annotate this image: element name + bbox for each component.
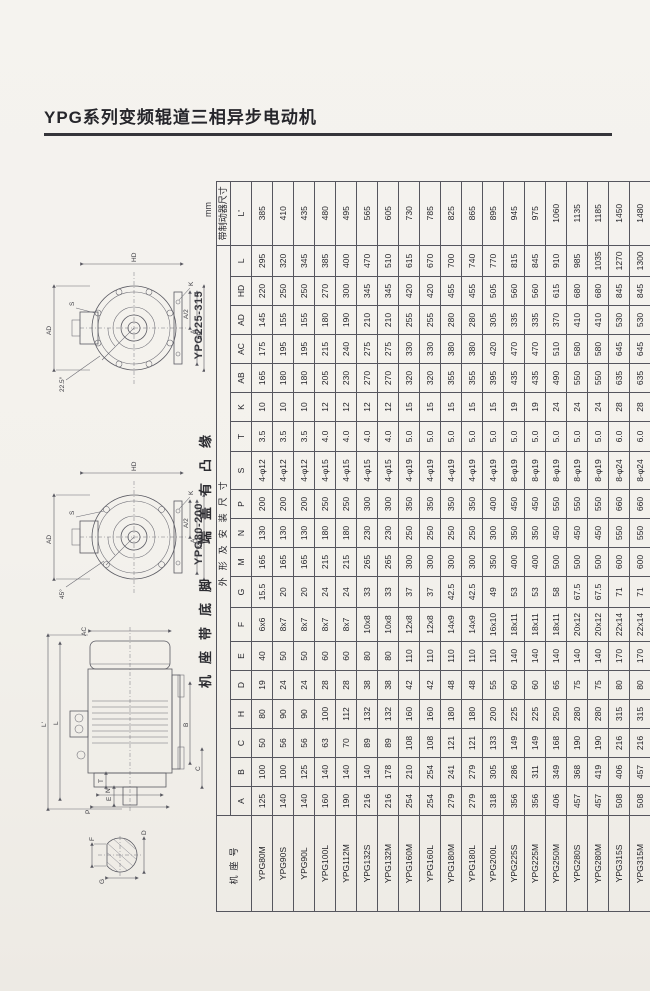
dim-cell: 265 (357, 548, 378, 577)
dim-cell: 56 (273, 729, 294, 758)
model-label: YPG132M (378, 816, 399, 912)
dim-cell: 1185 (588, 181, 609, 245)
shaft-cross-section: F D G (78, 822, 150, 888)
dim-cell: 80 (252, 700, 273, 729)
dim-cell: 550 (588, 364, 609, 393)
dim-cell: 10 (273, 393, 294, 422)
dim-cell: 8-φ19 (546, 452, 567, 490)
model-label: YPG315M (630, 816, 650, 912)
dim-cell: 14x9 (441, 608, 462, 642)
table-row: YPG180M2792411211804811014x942.530025035… (441, 181, 462, 911)
table-row: YPG280M4574191902807514020x1267.55004505… (588, 181, 609, 911)
motor-side-view: L' L AC B C E T N P (38, 625, 216, 815)
dim-cell: 200 (252, 490, 273, 519)
dim-cell: 1135 (567, 181, 588, 245)
dim-cell: 215 (315, 335, 336, 364)
dim-label-d: D (141, 830, 148, 835)
dim-cell: 130 (273, 519, 294, 548)
dim-cell: 149 (525, 729, 546, 758)
dim-cell: 53 (504, 577, 525, 608)
dim-cell: 15 (462, 393, 483, 422)
dim-cell: 635 (630, 364, 650, 393)
dim-cell: 140 (567, 642, 588, 671)
dim-cell: 250 (294, 277, 315, 306)
dim-cell: 5.0 (567, 422, 588, 452)
dim-cell: 80 (609, 671, 630, 700)
dim-cell: 280 (588, 700, 609, 729)
dim-cell: 419 (588, 758, 609, 787)
motor-outline (70, 627, 184, 811)
dim-cell: 130 (294, 519, 315, 548)
dim-cell: 4-φ15 (378, 452, 399, 490)
dim-cell: 5.0 (504, 422, 525, 452)
dim-cell: 60 (525, 671, 546, 700)
col-header-E: E (231, 642, 252, 671)
dim-cell: 5.0 (462, 422, 483, 452)
col-header-D: D (231, 671, 252, 700)
dim-cell: 565 (357, 181, 378, 245)
dim-cell: 395 (483, 364, 504, 393)
dim-cell: 740 (462, 245, 483, 276)
dimension-lines: L' L AC B C E T N P (41, 627, 202, 814)
dim-cell: 200 (294, 490, 315, 519)
model-label: YPG225M (525, 816, 546, 912)
dim-cell: 160 (399, 700, 420, 729)
dim-cell: 300 (462, 548, 483, 577)
dim-cell: 250 (336, 490, 357, 519)
dim-cell: 580 (567, 335, 588, 364)
dim-cell: 305 (483, 758, 504, 787)
dim-cell: 300 (336, 277, 357, 306)
dim-cell: 895 (483, 181, 504, 245)
table-row: YPG280S4573681902807514020x1267.55004505… (567, 181, 588, 911)
dim-cell: 10x8 (378, 608, 399, 642)
dim-cell: 42.5 (441, 577, 462, 608)
dim-cell: 510 (546, 335, 567, 364)
col-header-S: S (231, 452, 252, 490)
dim-cell: 168 (546, 729, 567, 758)
table-row: YPG315M5084572163158017022x1471600550660… (630, 181, 650, 911)
dim-cell: 406 (546, 787, 567, 816)
motor-outline (72, 481, 186, 593)
dim-cell: 250 (462, 519, 483, 548)
table-row: YPG112M1901407011228608x7242151802504-φ1… (336, 181, 357, 911)
table-row: YPG90L140125569024508x7201651302004-φ123… (294, 181, 315, 911)
dim-cell: 8-φ19 (567, 452, 588, 490)
dim-cell: 140 (336, 758, 357, 787)
dim-cell: 175 (252, 335, 273, 364)
dim-cell: 420 (420, 277, 441, 306)
dim-cell: 356 (504, 787, 525, 816)
dim-cell: 200 (273, 490, 294, 519)
dim-cell: 210 (357, 306, 378, 335)
dim-cell: 190 (336, 306, 357, 335)
dim-cell: 42 (399, 671, 420, 700)
dim-cell: 910 (546, 245, 567, 276)
dim-cell: 435 (294, 181, 315, 245)
dim-cell: 680 (567, 277, 588, 306)
dim-cell: 12x8 (399, 608, 420, 642)
dim-label-s: S (69, 301, 76, 306)
dim-cell: 280 (567, 700, 588, 729)
dim-cell: 845 (630, 277, 650, 306)
dim-cell: 20x12 (588, 608, 609, 642)
dim-cell: 42.5 (462, 577, 483, 608)
group-header-brake: 带制动器尺寸 (217, 181, 231, 245)
dim-cell: 15.5 (252, 577, 273, 608)
dim-cell: 615 (399, 245, 420, 276)
dim-cell: 16x10 (483, 608, 504, 642)
dim-cell: 320 (399, 364, 420, 393)
dim-cell: 24 (315, 577, 336, 608)
dim-cell: 67.5 (588, 577, 609, 608)
dim-cell: 110 (441, 642, 462, 671)
dim-cell: 305 (483, 306, 504, 335)
dim-cell: 155 (273, 306, 294, 335)
dim-cell: 28 (336, 671, 357, 700)
dim-cell: 300 (441, 548, 462, 577)
dim-cell: 480 (315, 181, 336, 245)
dim-label-b: B (183, 723, 190, 727)
dim-cell: 56 (294, 729, 315, 758)
dim-cell: 71 (609, 577, 630, 608)
dim-cell: 110 (399, 642, 420, 671)
model-label: YPG200L (483, 816, 504, 912)
dim-cell: 63 (315, 729, 336, 758)
dim-cell: 38 (378, 671, 399, 700)
dim-cell: 500 (588, 548, 609, 577)
col-header-A: A (231, 787, 252, 816)
dim-cell: 180 (441, 700, 462, 729)
dim-cell: 600 (630, 548, 650, 577)
dim-cell: 24 (546, 393, 567, 422)
table-row: YPG225S3562861492256014018x1153400350450… (504, 181, 525, 911)
dim-cell: 33 (378, 577, 399, 608)
dim-cell: 132 (357, 700, 378, 729)
dim-cell: 470 (504, 335, 525, 364)
dim-cell: 295 (252, 245, 273, 276)
dim-cell: 250 (315, 490, 336, 519)
dim-cell: 24 (336, 577, 357, 608)
col-header-K: K (231, 393, 252, 422)
dim-label-g: G (99, 879, 106, 884)
dim-cell: 65 (546, 671, 567, 700)
dim-cell: 24 (294, 671, 315, 700)
table-row: YPG160M2542101081604211012x8373002503504… (399, 181, 420, 911)
dim-cell: 140 (273, 787, 294, 816)
dim-cell: 67.5 (567, 577, 588, 608)
dim-cell: 660 (630, 490, 650, 519)
table-row: YPG160L2542541081604211012x8373002503504… (420, 181, 441, 911)
dim-label-l2: L' (41, 722, 48, 727)
dim-cell: 280 (462, 306, 483, 335)
dim-cell: 985 (567, 245, 588, 276)
dim-cell: 865 (462, 181, 483, 245)
dim-cell: 311 (525, 758, 546, 787)
dim-cell: 6.0 (630, 422, 650, 452)
model-label: YPG80M (252, 816, 273, 912)
dim-cell: 275 (378, 335, 399, 364)
dim-cell: 345 (357, 277, 378, 306)
col-header-AC: AC (231, 335, 252, 364)
dim-cell: 530 (630, 306, 650, 335)
dim-cell: 1060 (546, 181, 567, 245)
dim-cell: 5.0 (420, 422, 441, 452)
dim-cell: 8x7 (336, 608, 357, 642)
dim-cell: 210 (378, 306, 399, 335)
dim-cell: 28 (315, 671, 336, 700)
dim-cell: 216 (609, 729, 630, 758)
dim-cell: 300 (378, 490, 399, 519)
dim-cell: 75 (567, 671, 588, 700)
dim-cell: 110 (483, 642, 504, 671)
dim-cell: 4-φ19 (420, 452, 441, 490)
dim-cell: 318 (483, 787, 504, 816)
table-row: YPG200L3183051332005511016x1049350300400… (483, 181, 504, 911)
dim-cell: 5.0 (441, 422, 462, 452)
dim-label-t: T (98, 779, 105, 783)
dim-cell: 400 (483, 490, 504, 519)
dim-cell: 254 (420, 758, 441, 787)
dim-cell: 170 (630, 642, 650, 671)
table-caption: 机座带底脚 端盖有凸缘 (195, 200, 214, 912)
dim-cell: 24 (567, 393, 588, 422)
dim-cell: 28 (630, 393, 650, 422)
dim-cell: 10 (252, 393, 273, 422)
dim-cell: 140 (357, 758, 378, 787)
model-label: YPG250M (546, 816, 567, 912)
dim-cell: 815 (504, 245, 525, 276)
dim-cell: 350 (441, 490, 462, 519)
dim-cell: 80 (357, 642, 378, 671)
model-label: YPG90S (273, 816, 294, 912)
dim-cell: 455 (462, 277, 483, 306)
model-label: YPG315S (609, 816, 630, 912)
dim-cell: 20 (294, 577, 315, 608)
dim-cell: 58 (546, 577, 567, 608)
dim-cell: 400 (504, 548, 525, 577)
dim-cell: 945 (504, 181, 525, 245)
angle-label: 45° (58, 589, 66, 599)
dim-cell: 4.0 (315, 422, 336, 452)
dim-cell: 5.0 (525, 422, 546, 452)
dim-cell: 279 (462, 758, 483, 787)
dim-cell: 125 (294, 758, 315, 787)
dim-cell: 55 (483, 671, 504, 700)
dim-cell: 279 (441, 787, 462, 816)
dim-cell: 24 (588, 393, 609, 422)
dim-cell: 50 (273, 642, 294, 671)
dim-cell: 8-φ19 (504, 452, 525, 490)
dim-cell: 48 (441, 671, 462, 700)
table-caption-row: 机座带底脚 端盖有凸缘 mm (198, 200, 214, 912)
model-label: YPG180L (462, 816, 483, 912)
dim-cell: 121 (441, 729, 462, 758)
dim-cell: 350 (483, 548, 504, 577)
dim-cell: 165 (252, 548, 273, 577)
dim-label-hd: HD (131, 461, 138, 471)
dim-cell: 160 (315, 787, 336, 816)
dim-label-f: F (89, 837, 96, 841)
dim-cell: 1035 (588, 245, 609, 276)
dim-cell: 8x7 (273, 608, 294, 642)
dim-cell: 40 (252, 642, 273, 671)
dim-cell: 160 (420, 700, 441, 729)
dim-label-s: S (69, 510, 76, 515)
dim-cell: 825 (441, 181, 462, 245)
dim-cell: 550 (588, 490, 609, 519)
col-header-M: M (231, 548, 252, 577)
dim-cell: 435 (504, 364, 525, 393)
dim-cell: 505 (483, 277, 504, 306)
dim-cell: 785 (420, 181, 441, 245)
dim-cell: 225 (504, 700, 525, 729)
dim-cell: 286 (504, 758, 525, 787)
dim-cell: 350 (399, 490, 420, 519)
model-label: YPG280S (567, 816, 588, 912)
dim-cell: 645 (630, 335, 650, 364)
dim-cell: 180 (315, 306, 336, 335)
dim-cell: 8-φ19 (588, 452, 609, 490)
dim-cell: 845 (609, 277, 630, 306)
dim-label-l: L (53, 721, 60, 725)
dim-cell: 457 (630, 758, 650, 787)
dim-cell: 400 (525, 548, 546, 577)
dim-cell: 280 (441, 306, 462, 335)
dim-cell: 49 (483, 577, 504, 608)
dim-cell: 19 (504, 393, 525, 422)
dim-cell: 15 (420, 393, 441, 422)
dim-cell: 1450 (609, 181, 630, 245)
dim-cell: 60 (504, 671, 525, 700)
dim-cell: 215 (336, 548, 357, 577)
col-header-F: F (231, 608, 252, 642)
table-row: YPG225M3563111492256014018x1153400350450… (525, 181, 546, 911)
col-header-N: N (231, 519, 252, 548)
dim-cell: 210 (399, 758, 420, 787)
dim-cell: 215 (315, 548, 336, 577)
dim-cell: 350 (504, 519, 525, 548)
dim-cell: 500 (546, 548, 567, 577)
column-header-row: ABCHDEFGMNPSTKABACADHDLL' (231, 181, 252, 911)
dim-cell: 5.0 (546, 422, 567, 452)
group-header-main: 外形及安装尺寸 (217, 245, 231, 815)
model-label: YPG100L (315, 816, 336, 912)
dim-cell: 241 (441, 758, 462, 787)
dim-cell: 216 (378, 787, 399, 816)
dim-cell: 4-φ19 (483, 452, 504, 490)
rotated-table-region: 机座带底脚 端盖有凸缘 mm 机座号 外形及安装尺寸 带制动器尺寸 ABCHDE… (198, 200, 650, 912)
dim-cell: 24 (273, 671, 294, 700)
dim-cell: 20x12 (567, 608, 588, 642)
dim-cell: 15 (399, 393, 420, 422)
dim-cell: 615 (546, 277, 567, 306)
dim-cell: 50 (294, 642, 315, 671)
table-row: YPG132S21614089132388010x8332652303004-φ… (357, 181, 378, 911)
dim-cell: 149 (504, 729, 525, 758)
dim-cell: 112 (336, 700, 357, 729)
dim-cell: 195 (273, 335, 294, 364)
dim-cell: 200 (483, 700, 504, 729)
dim-cell: 370 (546, 306, 567, 335)
dim-cell: 240 (336, 335, 357, 364)
dim-cell: 230 (336, 364, 357, 393)
model-label: YPG160M (399, 816, 420, 912)
dim-cell: 145 (252, 306, 273, 335)
title-underline (44, 133, 612, 136)
dim-cell: 1300 (630, 245, 650, 276)
dim-cell: 406 (609, 758, 630, 787)
dim-cell: 660 (609, 490, 630, 519)
dim-cell: 125 (252, 787, 273, 816)
dimension-lines: AD HD A/2 A AB K S 22.5° (46, 252, 204, 392)
dim-cell: 4-φ12 (273, 452, 294, 490)
shaft-outline (98, 830, 150, 886)
dim-cell: 300 (420, 548, 441, 577)
dim-cell: 410 (273, 181, 294, 245)
dim-cell: 180 (462, 700, 483, 729)
dim-cell: 8-φ19 (525, 452, 546, 490)
dim-cell: 4-φ19 (441, 452, 462, 490)
dim-cell: 165 (252, 364, 273, 393)
dim-cell: 155 (294, 306, 315, 335)
dim-cell: 4-φ12 (252, 452, 273, 490)
dim-cell: 18x11 (525, 608, 546, 642)
dim-cell: 4-φ12 (294, 452, 315, 490)
dim-cell: 680 (588, 277, 609, 306)
dim-cell: 250 (420, 519, 441, 548)
dim-cell: 5.0 (483, 422, 504, 452)
dim-cell: 12 (336, 393, 357, 422)
dim-cell: 8x7 (315, 608, 336, 642)
dim-cell: 605 (378, 181, 399, 245)
dim-cell: 180 (273, 364, 294, 393)
dim-cell: 435 (525, 364, 546, 393)
dim-cell: 4-φ15 (315, 452, 336, 490)
dim-cell: 110 (420, 642, 441, 671)
table-row: YPG315S5084062163158017022x1471600550660… (609, 181, 630, 911)
model-label: YPG132S (357, 816, 378, 912)
flange-end-view-large: AD HD A/2 A AB K S 22.5° YPG225-315 (42, 252, 205, 398)
dim-cell: 1480 (630, 181, 650, 245)
dim-cell: 20 (273, 577, 294, 608)
dim-label-n: N (105, 788, 112, 793)
dim-cell: 8x7 (294, 608, 315, 642)
group-header-row: 机座号 外形及安装尺寸 带制动器尺寸 (217, 181, 231, 911)
dim-cell: 250 (546, 700, 567, 729)
dim-cell: 420 (399, 277, 420, 306)
dim-cell: 12 (315, 393, 336, 422)
dim-cell: 279 (462, 787, 483, 816)
dim-cell: 320 (273, 245, 294, 276)
dim-cell: 75 (588, 671, 609, 700)
dim-cell: 165 (273, 548, 294, 577)
dim-cell: 450 (588, 519, 609, 548)
dim-cell: 8-φ24 (609, 452, 630, 490)
dim-cell: 37 (399, 577, 420, 608)
dim-cell: 5.0 (399, 422, 420, 452)
dim-cell: 250 (273, 277, 294, 306)
dimension-table: 机座号 外形及安装尺寸 带制动器尺寸 ABCHDEFGMNPSTKABACADH… (216, 181, 650, 912)
dim-cell: 170 (609, 642, 630, 671)
model-label: YPG112M (336, 816, 357, 912)
dim-cell: 220 (252, 277, 273, 306)
dim-cell: 15 (483, 393, 504, 422)
dim-cell: 12 (378, 393, 399, 422)
dim-cell: 230 (357, 519, 378, 548)
dim-cell: 345 (378, 277, 399, 306)
dim-cell: 450 (525, 490, 546, 519)
